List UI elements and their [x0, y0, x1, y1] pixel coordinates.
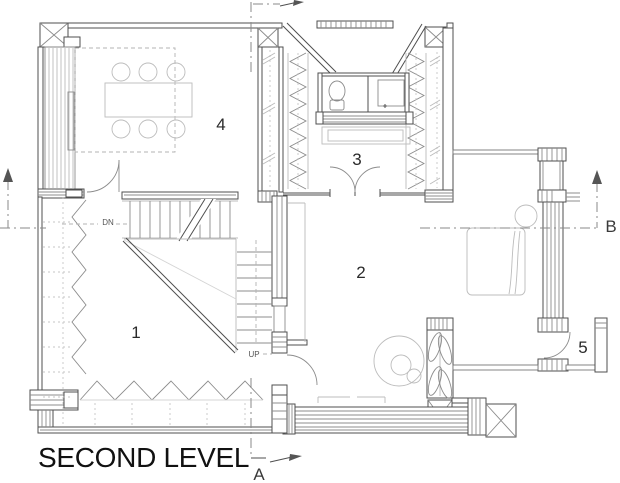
shower [378, 80, 404, 108]
bedroom [453, 148, 580, 332]
round-furniture [374, 336, 424, 386]
room-3-bathroom [283, 21, 426, 197]
room-label-1: 1 [131, 323, 140, 342]
room-4-dining [75, 47, 283, 192]
stairs-down-label: DN [102, 218, 114, 227]
dining-table [105, 63, 192, 138]
section-a-label: A [253, 465, 265, 483]
dormer-splay-left [283, 23, 336, 75]
railing-east [566, 365, 596, 370]
east-wall [425, 28, 454, 433]
railing-post [595, 318, 607, 372]
vanity-counter [316, 112, 413, 124]
room-label-2: 2 [356, 263, 365, 282]
room-label-5: 5 [578, 338, 587, 357]
deck-edge-south [30, 390, 284, 433]
stairs: DN UP [62, 192, 272, 359]
closet-louvers [426, 318, 455, 400]
room-label-4: 4 [216, 115, 225, 134]
window-band-south [283, 397, 516, 437]
bathtub [322, 127, 410, 144]
room-label-3: 3 [352, 150, 361, 169]
hall-wall [258, 191, 317, 433]
railing-west [453, 365, 538, 370]
section-b-label: B [605, 217, 616, 236]
bedroom-north-beam [453, 150, 538, 154]
stairs-up-label: UP [248, 350, 259, 359]
vent-ticks [566, 193, 580, 201]
bed [467, 228, 525, 295]
hall-door [287, 355, 317, 385]
floor-plan-page: DN UP [0, 0, 620, 483]
floor-plan-drawing: DN UP [0, 0, 620, 483]
dormer-window [317, 21, 393, 28]
window-wall-east [538, 148, 580, 332]
plan-title: SECOND LEVEL [38, 442, 249, 473]
folding-wall-south [80, 381, 263, 425]
room-4-door [87, 160, 119, 192]
dormer-splay-right [392, 24, 426, 76]
toilet [329, 81, 345, 110]
west-wall [38, 47, 84, 430]
balcony-door [544, 332, 570, 358]
bedside-stool [515, 205, 537, 227]
